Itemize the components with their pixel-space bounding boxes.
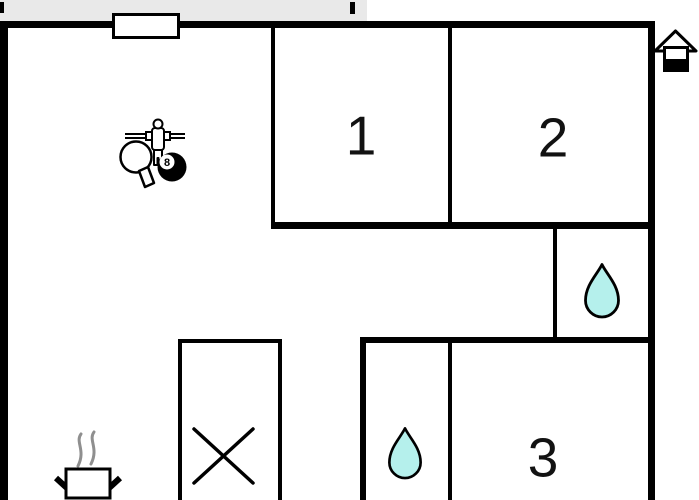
table-tennis-paddle-icon [121,142,155,188]
game-room-icon: 8 [116,113,190,189]
room-1-label: 1 [346,109,377,164]
wall-bathroom-lower-room3-divider [448,341,452,500]
wall-left [0,21,8,500]
water-drop-icon [583,262,621,319]
water-drop-icon [387,426,423,480]
house-icon [653,28,698,74]
steam-line [78,434,81,466]
room-3-label: 3 [528,431,559,486]
floor-plan: 1 2 3 8 [0,0,699,500]
room-2-label: 2 [538,111,569,166]
wall-lower-section-left [360,341,366,500]
x-mark-icon [182,343,278,500]
eight-ball-icon: 8 [158,153,187,182]
wall-top [0,21,655,28]
terrace-strip [0,0,367,22]
wall-bathroom-upper-left [553,229,557,341]
wall-right [648,21,655,500]
cooking-pot-icon [48,428,126,500]
eight-ball-number: 8 [164,157,170,169]
wall-room1-room2-divider [448,26,452,224]
crossed-area [178,339,282,500]
wall-horizontal-mid [271,222,655,229]
terrace-right-tick [350,2,355,14]
wall-horizontal-lower [360,337,655,343]
terrace-left-tick [0,2,4,13]
window-marker [112,13,180,39]
wall-room1-left [271,26,275,224]
steam-line [91,432,94,464]
